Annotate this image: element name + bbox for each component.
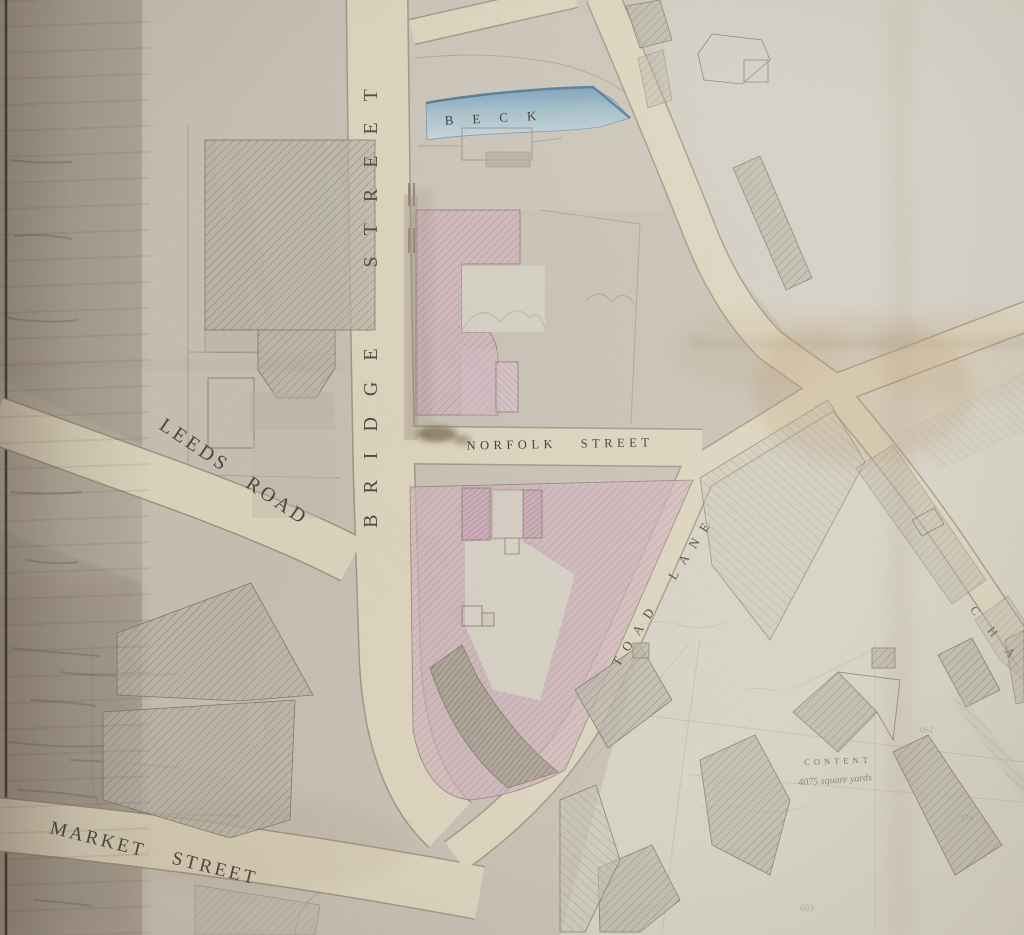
historic-town-plan: BECK BRIDGE STREET LEEDS ROAD NORFOLK ST… [0,0,1024,935]
map-canvas: BECK BRIDGE STREET LEEDS ROAD NORFOLK ST… [0,0,1024,935]
paper-grain [0,0,1024,935]
